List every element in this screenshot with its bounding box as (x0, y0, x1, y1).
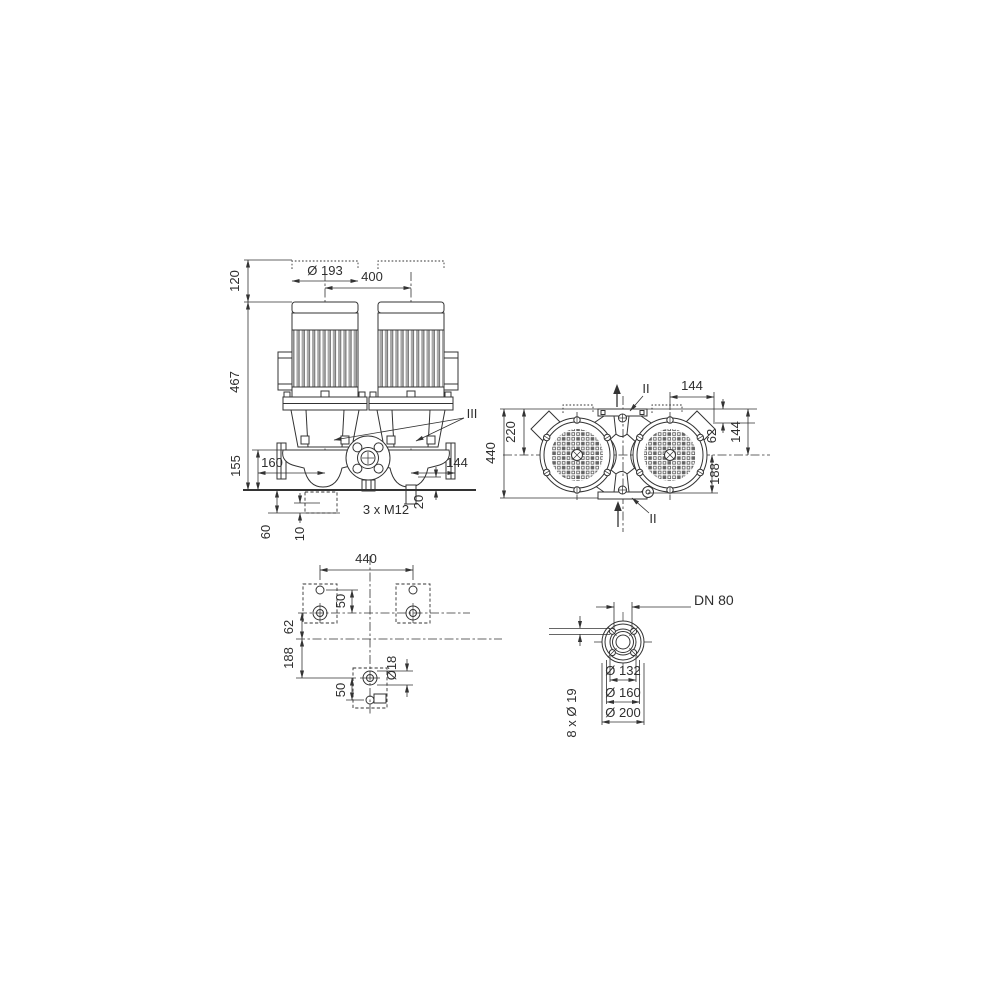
fan-cover-right (633, 417, 707, 494)
top-view-dimensions: 144 440 220 62 144 188 (483, 378, 757, 498)
pump-dimensional-drawing: 120 467 155 Ø 193 400 160 144 20 3 x M12 (0, 0, 1000, 1000)
dim-label-160: 160 (261, 455, 283, 470)
flange-view: DN 80 8 x Ø 19 Ø 132 Ø 160 Ø 200 (549, 592, 734, 738)
fan-cover-left (540, 417, 614, 494)
dim-label-188-foundation: 188 (281, 647, 296, 669)
dim-label-188-top: 188 (707, 463, 722, 485)
dim-label-62-top: 62 (704, 429, 719, 443)
motor-cap (292, 302, 358, 313)
lantern-left (291, 410, 359, 447)
discharge-flange-front (346, 436, 390, 491)
dim-label-50-top: 50 (333, 594, 348, 608)
top-view: II II 144 440 220 62 144 188 (483, 378, 770, 532)
motor-cap (378, 302, 444, 313)
dim-label-400: 400 (361, 269, 383, 284)
dim-label-50-bottom: 50 (333, 683, 348, 697)
section-label-ii-bottom: II (649, 511, 656, 526)
dim-label-144-front: 144 (446, 455, 468, 470)
foundation-dimensions: 440 50 62 188 50 Ø18 (281, 551, 413, 700)
flange-dimensions: DN 80 8 x Ø 19 Ø 132 Ø 160 Ø 200 (549, 592, 734, 738)
phantom-motor-right (378, 261, 444, 269)
motor-fins (293, 330, 357, 387)
dim-label-440-top: 440 (483, 442, 498, 464)
dim-label-144-top: 144 (681, 378, 703, 393)
terminal-box-left (278, 352, 292, 390)
dim-label-467: 467 (227, 371, 242, 393)
foundation-pad-phantom (305, 492, 337, 513)
flow-arrow-top (613, 384, 621, 407)
dim-label-dia160: Ø 160 (605, 685, 640, 700)
pump-dimensional-drawing-page: 120 467 155 Ø 193 400 160 144 20 3 x M12 (0, 0, 1000, 1000)
pad-top-right (396, 584, 430, 623)
discharge-flange-top (598, 409, 647, 423)
clamp-detail (643, 487, 654, 498)
dim-label-8xdia19: 8 x Ø 19 (564, 688, 579, 737)
dim-label-155: 155 (228, 455, 243, 477)
lantern-right (377, 410, 445, 447)
dim-label-dia193: Ø 193 (307, 263, 342, 278)
dim-label-dia200: Ø 200 (605, 705, 640, 720)
section-label-iii: III (467, 406, 478, 421)
dim-label-dia132: Ø 132 (605, 663, 640, 678)
dim-label-dn80: DN 80 (694, 592, 734, 608)
dim-label-dia18: Ø18 (384, 656, 399, 681)
motor-fins (379, 330, 443, 387)
terminal-box-right (444, 352, 458, 390)
drain-plug-label: 3 x M12 (363, 502, 409, 517)
motor-left (278, 302, 367, 427)
motor-right (369, 302, 458, 427)
dim-label-20: 20 (411, 495, 426, 509)
dim-label-144-right: 144 (728, 421, 743, 443)
dim-label-10: 10 (292, 527, 307, 541)
suction-flange-bottom (598, 486, 654, 500)
section-label-ii-top: II (642, 381, 649, 396)
dim-label-60: 60 (258, 525, 273, 539)
dim-label-440-foundation: 440 (355, 551, 377, 566)
dim-label-62-foundation: 62 (281, 620, 296, 634)
front-view: 120 467 155 Ø 193 400 160 144 20 3 x M12 (227, 260, 477, 541)
foundation-view: 440 50 62 188 50 Ø18 (281, 551, 502, 716)
dim-label-120: 120 (227, 270, 242, 292)
flow-arrow-bottom (614, 501, 622, 527)
dim-label-220: 220 (503, 421, 518, 443)
